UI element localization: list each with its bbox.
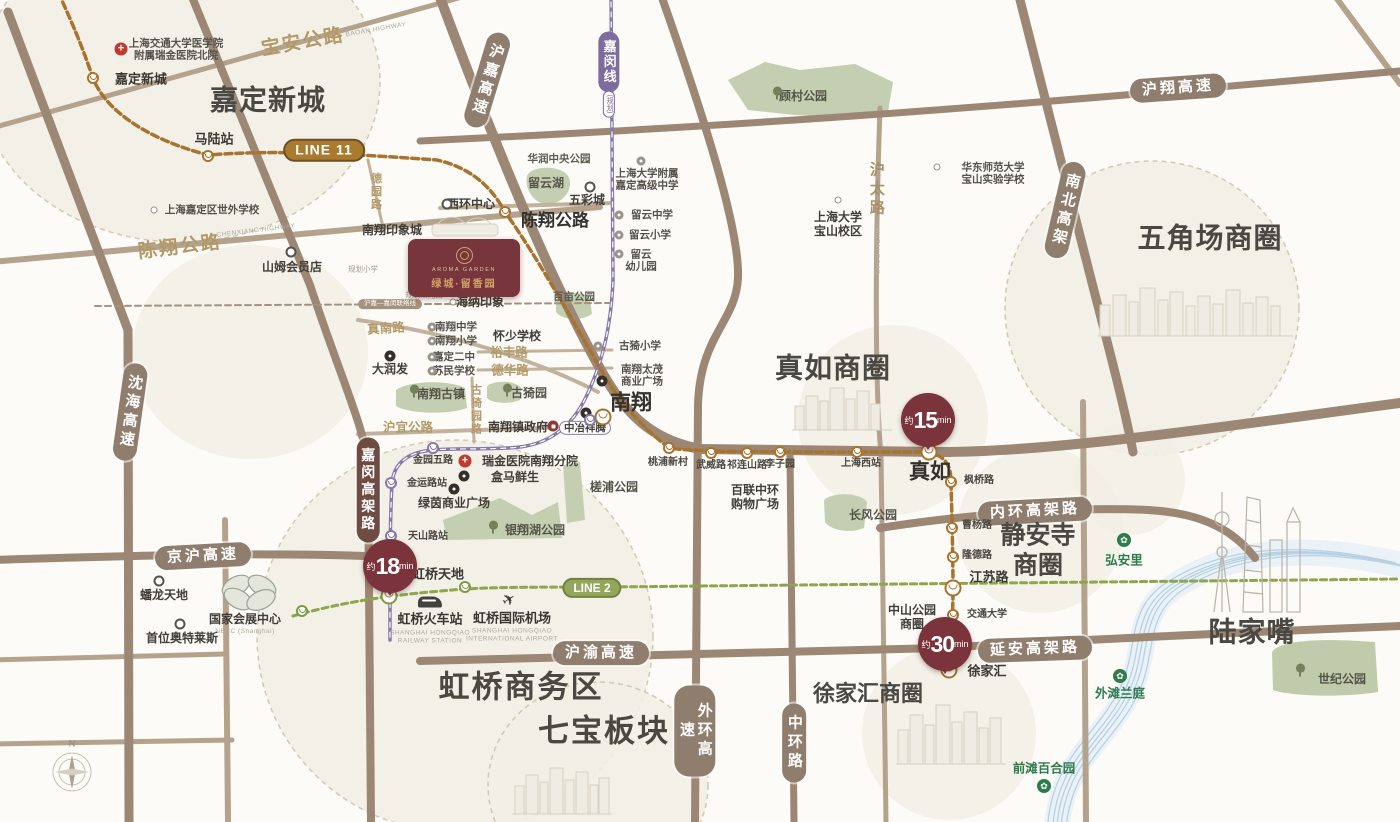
- time-badge-p: 约: [921, 638, 930, 651]
- jiading-wfl-school: 上海嘉定区世外学校: [165, 204, 260, 216]
- qiantan-baiheyuan: 前滩百合园: [1013, 762, 1076, 777]
- line2-station-icon: [459, 581, 471, 593]
- school-icon: [428, 353, 437, 362]
- school-icon: [428, 367, 437, 376]
- xujiahui-business-area: 徐家汇商圈: [813, 681, 923, 707]
- panlong-tiandi: 蟠龙天地: [140, 588, 188, 602]
- line11-interchange-icon: [595, 409, 612, 426]
- jiangsu-road-station: 江苏路: [969, 569, 1008, 584]
- necc-en: NECC (Shanghai): [215, 628, 275, 636]
- line11-station-icon: [741, 447, 753, 459]
- time-badge-v: 15: [913, 407, 937, 434]
- chenxiang-highway-en: CHENXIANG HIGHWAY: [216, 222, 296, 239]
- yufeng-road: 裕丰路: [490, 346, 528, 361]
- zhenru-business-area: 真如商圈: [775, 351, 891, 384]
- park-tree-icon: [771, 87, 783, 102]
- jiamin-elevated-road: 嘉闵高架路: [357, 438, 380, 543]
- nanxiang-town-government: 南翔镇政府: [488, 420, 548, 434]
- shouwei-outlets: 首位奥特莱斯: [146, 631, 218, 645]
- zhennan-road: 真南路: [367, 320, 405, 337]
- mall-icon: [581, 408, 592, 419]
- hujia-jiamin-link-line: 沪嘉—嘉闵联络线: [358, 299, 422, 309]
- time-badge-p: 约: [366, 560, 375, 573]
- government-icon: [548, 421, 559, 432]
- time-badge-18min: 约18min: [363, 539, 417, 593]
- jiadingxincheng-station: 嘉定新城: [115, 71, 167, 86]
- line11-station-icon: [851, 446, 863, 458]
- poi-dot-icon: [450, 299, 457, 306]
- school-dot-icon: [835, 197, 842, 204]
- huxiang-expressway: 沪翔高速: [1129, 73, 1226, 103]
- longde-road-station: 隆德路: [962, 550, 992, 562]
- line11-station-icon: [774, 446, 786, 458]
- jiamin-line-station-icon: [427, 442, 439, 454]
- nanxiang-incity-mall: 南翔印象城: [362, 223, 422, 237]
- liuyun-primary-school: 留云小学: [629, 229, 671, 241]
- line11-interchange-icon: [945, 580, 962, 597]
- school-dot-icon: [934, 164, 941, 171]
- waitan-lanting: 外滩兰庭: [1095, 687, 1145, 702]
- lvyin-plaza: 绿茵商业广场: [418, 496, 490, 510]
- taopu-xincun-station: 桃浦新村: [648, 457, 688, 469]
- time-badge-v: 30: [930, 631, 954, 658]
- ruijin-hospital-nanxiang: 瑞金医院南翔分院: [482, 454, 578, 468]
- jiamin-line-station-icon: [385, 477, 397, 489]
- ruijin-hospital-north: 上海交通大学医学院 附属瑞金医院北院: [129, 38, 224, 63]
- huyu-expressway: 沪渝高速: [553, 641, 649, 665]
- school-icon: [428, 323, 437, 332]
- nanxiang-middle-school: 南翔中学: [435, 321, 477, 333]
- line11-station-icon: [946, 522, 958, 534]
- huaishao-school: 怀少学校: [493, 329, 541, 343]
- tianshan-road-station: 天山路站: [408, 531, 448, 543]
- jiamin-line-planned: (规划): [603, 91, 615, 118]
- liuyun-middle-school: 留云中学: [631, 209, 673, 221]
- line11-station-icon: [499, 206, 511, 218]
- xihuan-center: 西环中心: [447, 197, 495, 211]
- huyi-highway: 沪宜公路: [383, 421, 433, 436]
- project-name-cn: 绿城·留香园: [431, 275, 496, 290]
- time-badge-v: 18: [375, 553, 399, 580]
- time-badge-15min: 约15min: [901, 393, 955, 447]
- nanxiang-primary-school: 南翔小学: [435, 335, 477, 347]
- line2-badge: LINE 2: [562, 578, 621, 598]
- park-tree-icon: [1294, 664, 1306, 679]
- changfeng-park: 长风公园: [849, 508, 897, 522]
- liziyuan-station: 李子园: [765, 459, 795, 471]
- hujia-expressway: 沪嘉高速: [461, 30, 512, 131]
- school-icon: [594, 342, 603, 351]
- mall-icon: [442, 199, 453, 210]
- greentown-flower-icon: [1037, 779, 1051, 793]
- time-badge-30min: 约30min: [918, 617, 972, 671]
- hospital-icon: [459, 455, 472, 468]
- line11-badge: LINE 11: [283, 139, 365, 162]
- shu-affiliated-school: 上海大学附属 嘉定高级中学: [616, 168, 679, 193]
- jinyun-road-station: 金运路站: [407, 478, 447, 490]
- guyi-primary-school: 古猗小学: [619, 340, 661, 352]
- shanghai-west-station: 上海西站: [841, 458, 881, 470]
- school-icon: [615, 211, 624, 220]
- hongqiao-airport-en: SHANGHAI HONGQIAO INTERNATIONAL AIRPORT: [466, 627, 558, 642]
- time-badge-u: min: [399, 561, 414, 571]
- north-south-elevated: 南北高架: [1042, 160, 1087, 261]
- qibao-area: 七宝板块: [538, 714, 670, 751]
- outer-ring-expressway: 外环高速: [674, 686, 715, 777]
- caoyang-road-station: 曹杨路: [962, 520, 992, 532]
- lujiazui-area: 陆家嘴: [1208, 615, 1295, 648]
- baoan-highway: 宝安公路: [260, 25, 347, 62]
- project-name-en: AROMA GARDEN: [432, 267, 496, 273]
- haina-yinxiang: 海纳印象: [456, 295, 504, 309]
- school-dot-icon: [151, 207, 158, 214]
- deyuan-road: 德园路: [369, 173, 382, 212]
- location-map: 上海交通大学医学院 附属瑞金医院北院嘉定新城嘉定新城宝安公路BAOAN HIGH…: [0, 0, 1400, 822]
- supermarket-icon: [385, 351, 396, 362]
- chenxiang-highway: 陈翔公路: [137, 232, 223, 264]
- hospital-icon: [115, 43, 128, 56]
- hongqiao-airport: 虹桥国际机场: [473, 610, 551, 625]
- wuwei-road-station: 武威路: [696, 460, 726, 472]
- yanan-elevated-road: 延安高架路: [978, 635, 1093, 663]
- line11-station-icon: [87, 72, 99, 84]
- jiading-no2-school: 嘉定二中: [433, 351, 475, 363]
- line11-station-icon: [945, 476, 957, 488]
- jiamin-line-label: 嘉闵线: [598, 32, 619, 93]
- middle-ring-road: 中环路: [782, 704, 806, 783]
- guyiyuan-road: 古猗园路: [469, 384, 482, 436]
- zhongye-xiangteng: 中冶祥腾: [559, 421, 611, 435]
- malu-station: 马陆站: [194, 131, 233, 146]
- park-tree-icon: [408, 385, 420, 400]
- zhenru-station: 真如: [909, 461, 951, 486]
- sumin-school: 苏民学校: [433, 365, 475, 377]
- gucun-park: 顾村公园: [779, 89, 827, 103]
- century-park: 世纪公园: [1318, 672, 1366, 686]
- planned-primary-school: 规划小学: [348, 266, 378, 275]
- mall-icon: [597, 376, 608, 387]
- hongqiao-tiandi: 虹桥天地: [412, 566, 464, 581]
- compass-north-label: N: [69, 739, 76, 750]
- dehua-road: 德华路: [491, 364, 529, 379]
- mall-icon: [175, 619, 186, 630]
- necc: 国家会展中心: [209, 612, 281, 626]
- plane-icon: [502, 590, 515, 610]
- mall-icon: [154, 576, 165, 587]
- chenxiang-highway-station: 陈翔公路: [521, 211, 589, 231]
- hongqiao-railway-station-en: SHANGHAI HONGQIAO RAILWAY STATION: [390, 629, 470, 644]
- mall-icon: [585, 182, 596, 193]
- mall-icon: [449, 484, 460, 495]
- hongan-li: 弘安里: [1105, 554, 1143, 569]
- liuyun-lake: 留云湖: [528, 176, 564, 190]
- line11-station-icon: [705, 447, 717, 459]
- line11-station-icon: [663, 442, 675, 454]
- hutai-road: 沪太路: [867, 162, 885, 219]
- aroma-garden-logo-icon: [456, 247, 473, 264]
- bailian-zhonghuan-mall: 百联中环 购物广场: [731, 483, 779, 511]
- hutai-road-en: HUTAI ROAD: [872, 229, 879, 276]
- fengqiao-road-station: 枫桥路: [964, 475, 994, 487]
- baimu-park: 百亩公园: [553, 291, 595, 303]
- school-icon: [615, 250, 624, 259]
- rt-mart: 大润发: [372, 362, 408, 376]
- line2-station-icon: [296, 605, 308, 617]
- nanxiang-station: 南翔: [610, 392, 652, 417]
- xujiahui-station: 徐家汇: [967, 663, 1006, 678]
- hema-fresh: 盒马鲜生: [491, 470, 539, 484]
- park-tree-icon: [487, 521, 499, 536]
- qilianshan-road-station: 祁连山路: [727, 460, 767, 472]
- liuyun-kindergarten: 留云 幼儿园: [625, 249, 657, 274]
- baoan-highway-en: BAOAN HIGHWAY: [345, 21, 407, 39]
- school-icon: [428, 337, 437, 346]
- jiading-new-town-area: 嘉定新城: [210, 83, 326, 116]
- jinyuan-wulu-station: 金园五路: [413, 455, 453, 467]
- shanghai-university-baoshan: 上海大学 宝山校区: [814, 210, 862, 238]
- jiamin-line-station-icon: [584, 414, 596, 426]
- huarun-central-park: 华润中央公园: [528, 153, 591, 165]
- jinghu-expressway: 京沪高速: [154, 542, 251, 571]
- park-tree-icon: [501, 384, 513, 399]
- line11-station-icon: [202, 150, 214, 162]
- time-badge-u: min: [937, 415, 952, 425]
- school-icon: [637, 157, 646, 166]
- guyi-garden: 古猗园: [511, 386, 547, 400]
- ecnu-baoshan-school: 华东师范大学 宝山实验学校: [962, 162, 1025, 187]
- chapu-park: 槎浦公园: [590, 480, 638, 494]
- inner-ring-elevated-road: 内环高架路: [977, 496, 1092, 526]
- hongqiao-business-district: 虹桥商务区: [439, 670, 604, 707]
- wujiaochang-business-area: 五角场商圈: [1137, 221, 1282, 254]
- nanxiang-taimao-plaza: 南翔太茂 商业广场: [621, 364, 663, 389]
- shenhai-expressway: 沈海高速: [111, 362, 148, 462]
- train-icon: [418, 597, 442, 608]
- time-badge-p: 约: [904, 414, 913, 427]
- nanxiang-old-town: 南翔古镇: [417, 387, 465, 401]
- line11-station-icon: [947, 551, 959, 563]
- map-labels-layer: 上海交通大学医学院 附属瑞金医院北院嘉定新城嘉定新城宝安公路BAOAN HIGH…: [0, 0, 1400, 822]
- yinxianghu-park: 银翔湖公园: [505, 523, 565, 537]
- store-icon: [459, 471, 470, 482]
- wucaicheng-mall: 五彩城: [569, 193, 605, 207]
- jiaotong-university-station: 交通大学: [967, 609, 1007, 621]
- jingansi-business-area: 静安寺 商圈: [1000, 522, 1075, 581]
- time-badge-u: min: [954, 639, 969, 649]
- sams-club: 山姆会员店: [262, 260, 322, 274]
- greentown-flower-icon: [1117, 533, 1131, 547]
- aroma-garden-project: AROMA GARDEN 绿城·留香园: [408, 239, 520, 297]
- hongqiao-railway-station: 虹桥火车站: [397, 611, 462, 626]
- mall-icon: [286, 247, 297, 258]
- school-icon: [615, 231, 624, 240]
- greentown-flower-icon: [1113, 669, 1127, 683]
